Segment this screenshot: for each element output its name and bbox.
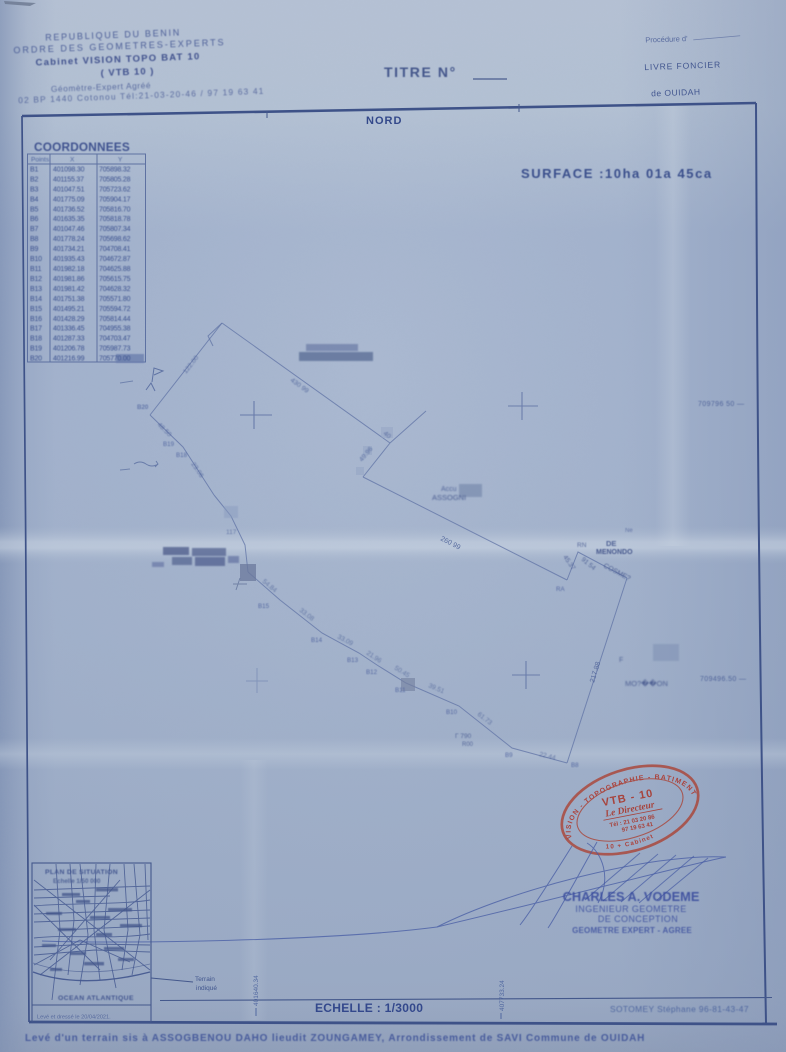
svg-text:B14: B14 xyxy=(311,637,323,644)
svg-text:MO?��ON: MO?��ON xyxy=(625,678,668,688)
svg-text:NORD: NORD xyxy=(366,115,402,127)
svg-text:Y: Y xyxy=(118,157,123,164)
svg-text:B11: B11 xyxy=(395,687,406,694)
svg-text:B18: B18 xyxy=(30,336,42,343)
svg-text:705904.17: 705904.17 xyxy=(99,196,131,203)
svg-text:401206.78: 401206.78 xyxy=(53,346,85,353)
svg-text:401635.35: 401635.35 xyxy=(53,216,85,223)
svg-text:705898.32: 705898.32 xyxy=(99,167,131,174)
svg-text:B8: B8 xyxy=(571,762,579,769)
svg-text:117: 117 xyxy=(226,529,237,536)
svg-text:401981.42: 401981.42 xyxy=(53,286,85,293)
svg-text:B7: B7 xyxy=(30,226,38,233)
svg-text:401981.86: 401981.86 xyxy=(53,276,85,283)
svg-text:709496.50 —: 709496.50 — xyxy=(700,676,746,683)
svg-text:401047.51: 401047.51 xyxy=(53,186,85,193)
svg-text:B17: B17 xyxy=(30,326,42,333)
svg-text:( VTB 10 ): ( VTB 10 ) xyxy=(100,66,154,79)
svg-text:B10: B10 xyxy=(30,256,42,263)
svg-text:B18: B18 xyxy=(176,452,188,459)
svg-text:705805.28: 705805.28 xyxy=(99,176,131,183)
svg-text:Levé et dressé le 20/04/2021.: Levé et dressé le 20/04/2021. xyxy=(37,1015,111,1021)
svg-text:704628.32: 704628.32 xyxy=(99,286,131,293)
svg-text:indiqué: indiqué xyxy=(196,985,217,992)
svg-text:705723.62: 705723.62 xyxy=(99,186,131,193)
svg-text:B11: B11 xyxy=(30,266,42,273)
svg-text:B20: B20 xyxy=(137,404,149,411)
svg-text:705698.62: 705698.62 xyxy=(99,236,131,243)
svg-text:Γ 790: Γ 790 xyxy=(455,733,472,740)
svg-text:401098.30: 401098.30 xyxy=(53,167,85,174)
svg-text:Procédure d': Procédure d' xyxy=(645,34,688,44)
svg-text:B16: B16 xyxy=(30,316,42,323)
svg-text:Terrain: Terrain xyxy=(195,976,215,983)
svg-text:RA: RA xyxy=(556,586,565,593)
svg-text:SURFACE :10ha 01a 45ca: SURFACE :10ha 01a 45ca xyxy=(521,166,713,181)
svg-text:COORDONNEES: COORDONNEES xyxy=(34,140,130,154)
svg-text:DE: DE xyxy=(606,539,616,548)
svg-text:B19: B19 xyxy=(30,346,42,353)
svg-text:705816.70: 705816.70 xyxy=(99,206,131,213)
svg-text:B14: B14 xyxy=(30,296,42,303)
svg-text:de OUIDAH: de OUIDAH xyxy=(651,87,701,99)
svg-text:Accu: Accu xyxy=(441,486,457,493)
svg-text:704708.41: 704708.41 xyxy=(99,246,131,253)
svg-text:705770.00: 705770.00 xyxy=(99,356,131,363)
svg-text:705814.44: 705814.44 xyxy=(99,316,131,323)
svg-text:704625.88: 704625.88 xyxy=(99,266,131,273)
svg-text:704955.38: 704955.38 xyxy=(99,326,131,333)
svg-text:B9: B9 xyxy=(505,752,513,759)
svg-text:B20: B20 xyxy=(30,356,42,363)
svg-text:GEOMETRE EXPERT - AGREE: GEOMETRE EXPERT - AGREE xyxy=(572,926,692,935)
svg-text:709796 50 —: 709796 50 — xyxy=(698,401,744,408)
svg-text:705987.73: 705987.73 xyxy=(99,346,131,353)
svg-text:705594.72: 705594.72 xyxy=(99,306,131,313)
svg-text:ECHELLE : 1/3000: ECHELLE : 1/3000 xyxy=(315,1001,423,1015)
svg-text:R00: R00 xyxy=(462,742,474,748)
svg-text:B13: B13 xyxy=(347,657,359,664)
svg-text:704672.87: 704672.87 xyxy=(99,256,131,263)
svg-text:B15: B15 xyxy=(30,306,42,313)
svg-text:704703.47: 704703.47 xyxy=(99,336,131,343)
svg-text:B13: B13 xyxy=(30,286,42,293)
svg-text:TITRE N°: TITRE N° xyxy=(384,64,457,80)
svg-text:401336.45: 401336.45 xyxy=(53,326,85,333)
svg-text:B5: B5 xyxy=(30,206,38,213)
svg-text:401734.21: 401734.21 xyxy=(53,246,85,253)
svg-text:B2: B2 xyxy=(30,176,38,183)
svg-text:401736.52: 401736.52 xyxy=(53,206,85,213)
svg-text:705807.34: 705807.34 xyxy=(99,226,131,233)
svg-text:401047.46: 401047.46 xyxy=(53,226,85,233)
svg-text:OCEAN ATLANTIQUE: OCEAN ATLANTIQUE xyxy=(58,995,134,1002)
svg-text:401155.37: 401155.37 xyxy=(53,176,84,183)
svg-text:401935.43: 401935.43 xyxy=(53,256,85,263)
svg-text:ASSOGNI: ASSOGNI xyxy=(432,493,466,502)
svg-text:CHARLES A. VODEME: CHARLES A. VODEME xyxy=(563,889,700,904)
svg-text:RN: RN xyxy=(577,542,587,549)
svg-text:705615.75: 705615.75 xyxy=(99,276,131,283)
svg-text:401495.21: 401495.21 xyxy=(53,306,85,313)
svg-text:B19: B19 xyxy=(163,441,175,448)
svg-text:MENONDO: MENONDO xyxy=(596,549,633,556)
svg-text:B15: B15 xyxy=(258,603,270,610)
svg-text:705818.78: 705818.78 xyxy=(99,216,131,223)
svg-text:B1: B1 xyxy=(30,167,38,174)
svg-text:401751.38: 401751.38 xyxy=(53,296,85,303)
svg-text:401775.09: 401775.09 xyxy=(53,196,85,203)
svg-text:INGENIEUR GEOMETRE: INGENIEUR GEOMETRE xyxy=(575,904,686,914)
svg-text:401216.99: 401216.99 xyxy=(53,356,85,363)
svg-text:401428.29: 401428.29 xyxy=(53,316,85,323)
svg-text:Ne: Ne xyxy=(625,528,633,534)
svg-text:Echelle 1/50 000: Echelle 1/50 000 xyxy=(53,878,101,885)
svg-text:SOTOMEY Stéphane 96-81-43-47: SOTOMEY Stéphane 96-81-43-47 xyxy=(610,1004,749,1014)
svg-text:B6: B6 xyxy=(30,216,38,223)
svg-text:407733.24: 407733.24 xyxy=(499,980,506,1011)
svg-text:705571.80: 705571.80 xyxy=(99,296,131,303)
svg-text:B10: B10 xyxy=(446,709,458,716)
svg-text:401778.24: 401778.24 xyxy=(53,236,85,243)
svg-text:401287.33: 401287.33 xyxy=(53,336,85,343)
svg-text:B3: B3 xyxy=(30,186,38,193)
svg-text:B4: B4 xyxy=(30,196,38,203)
svg-text:X: X xyxy=(70,157,75,164)
svg-text:B12: B12 xyxy=(366,669,378,676)
svg-text:B12: B12 xyxy=(30,276,42,283)
svg-text:B8: B8 xyxy=(30,236,38,243)
svg-text:B9: B9 xyxy=(30,246,38,253)
svg-text:Levé d'un terrain sis à ASSOG: Levé d'un terrain sis à ASSOGBENOU DAHO … xyxy=(25,1033,645,1044)
svg-text:401982.18: 401982.18 xyxy=(53,266,85,273)
svg-text:Points: Points xyxy=(31,157,50,164)
svg-text:401640.34: 401640.34 xyxy=(253,975,260,1006)
svg-text:DE CONCEPTION: DE CONCEPTION xyxy=(598,914,678,924)
svg-text:F: F xyxy=(619,657,623,664)
